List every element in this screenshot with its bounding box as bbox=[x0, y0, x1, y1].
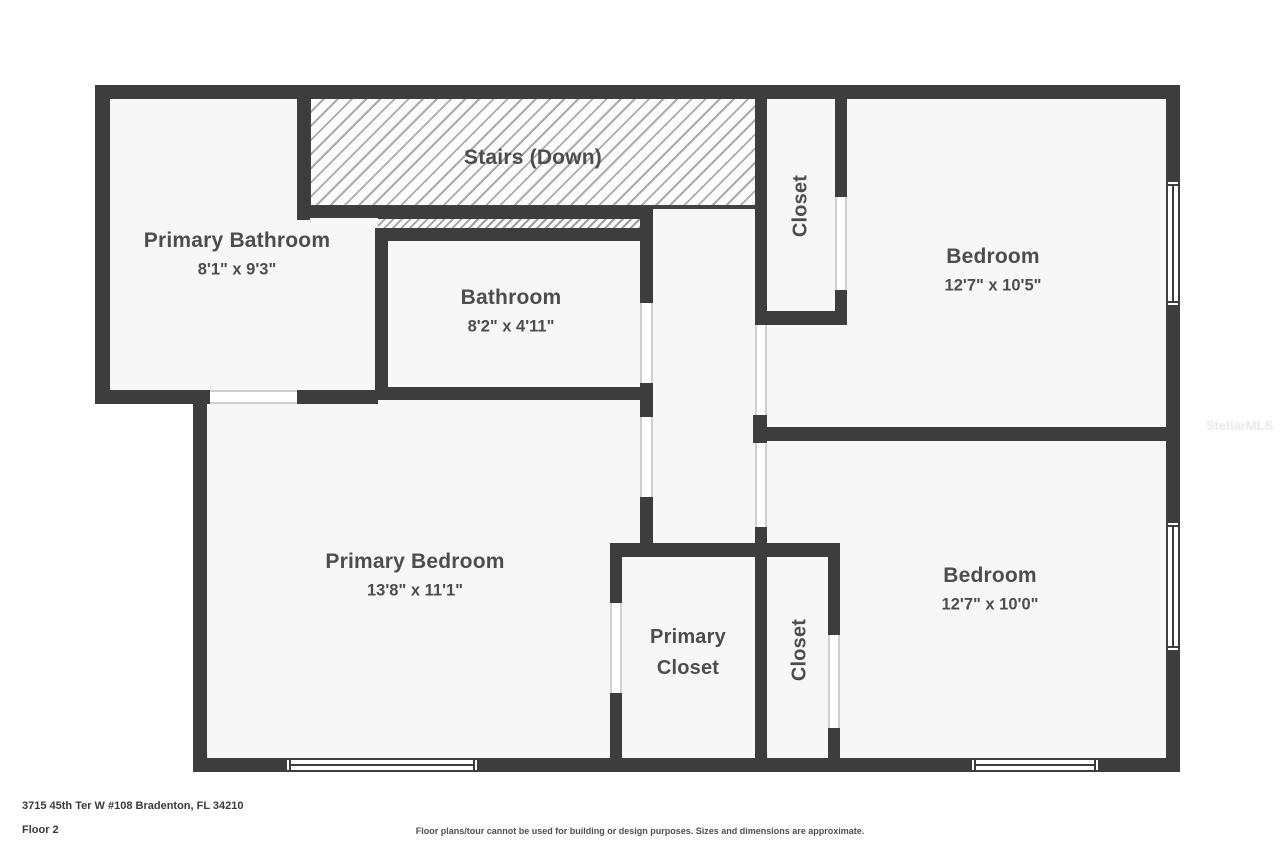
room-dims-bathroom: 8'2" x 4'11" bbox=[468, 318, 555, 337]
room-label-bedroom-bottom-right: Bedroom bbox=[943, 564, 1037, 588]
door-opening bbox=[640, 417, 653, 497]
door-opening bbox=[610, 603, 622, 693]
door-opening bbox=[835, 197, 847, 290]
room-label-stairs: Stairs (Down) bbox=[464, 146, 602, 170]
window-frame bbox=[1168, 646, 1178, 648]
window bbox=[1166, 182, 1180, 305]
door-opening bbox=[828, 635, 840, 728]
window-frame bbox=[1168, 184, 1178, 186]
floor-number-text: Floor 2 bbox=[22, 824, 59, 836]
room-dims-primary-bathroom: 8'1" x 9'3" bbox=[198, 261, 277, 280]
wall bbox=[835, 85, 847, 197]
wall bbox=[640, 206, 653, 303]
floor-plan-canvas: Stairs (Down) Primary Bathroom 8'1" x 9'… bbox=[0, 0, 1280, 852]
window-frame bbox=[1168, 525, 1178, 527]
wall bbox=[610, 693, 622, 772]
wall bbox=[755, 85, 767, 325]
door-opening bbox=[755, 325, 767, 415]
wall bbox=[375, 228, 388, 400]
room-dims-bedroom-top-right: 12'7" x 10'5" bbox=[945, 277, 1042, 296]
wall bbox=[755, 311, 847, 325]
window-frame bbox=[1094, 760, 1096, 770]
wall bbox=[640, 497, 653, 543]
window bbox=[287, 758, 477, 772]
mls-watermark: StellarMLS bbox=[1206, 418, 1273, 433]
wall bbox=[828, 728, 840, 772]
window-frame bbox=[974, 760, 976, 770]
door-opening bbox=[210, 390, 297, 404]
window-pane bbox=[1172, 527, 1174, 646]
wall bbox=[755, 527, 767, 772]
window bbox=[1166, 523, 1180, 650]
wall bbox=[95, 85, 1180, 99]
wall bbox=[760, 427, 1180, 441]
room-label-bedroom-top-right: Bedroom bbox=[946, 245, 1040, 269]
wall bbox=[375, 228, 653, 241]
room-dims-primary-bedroom: 13'8" x 11'1" bbox=[367, 582, 463, 601]
door-opening bbox=[755, 443, 767, 527]
window-frame bbox=[289, 760, 291, 770]
window-frame bbox=[473, 760, 475, 770]
door-opening bbox=[640, 303, 653, 383]
disclaimer-text: Floor plans/tour cannot be used for buil… bbox=[416, 826, 865, 836]
address-text: 3715 45th Ter W #108 Bradenton, FL 34210 bbox=[22, 800, 244, 812]
room-label-primary-bathroom: Primary Bathroom bbox=[144, 229, 330, 253]
wall bbox=[310, 206, 653, 218]
wall bbox=[828, 543, 840, 635]
window-pane bbox=[976, 764, 1094, 766]
wall bbox=[375, 387, 653, 400]
wall bbox=[193, 390, 207, 772]
room-label-primary-bedroom: Primary Bedroom bbox=[325, 550, 504, 574]
wall bbox=[610, 543, 622, 603]
outside-area bbox=[0, 404, 194, 852]
room-label-closet-bottom: Closet bbox=[789, 619, 812, 681]
room-dims-bedroom-bottom-right: 12'7" x 10'0" bbox=[942, 596, 1039, 615]
room-label-bathroom: Bathroom bbox=[461, 286, 562, 310]
window-pane bbox=[1172, 186, 1174, 301]
wall bbox=[297, 85, 310, 220]
wall bbox=[610, 543, 767, 557]
window-pane bbox=[291, 764, 473, 766]
room-label-primary-closet: Primary Closet bbox=[623, 622, 753, 684]
window-frame bbox=[1168, 301, 1178, 303]
wall bbox=[95, 85, 110, 404]
window bbox=[972, 758, 1098, 772]
room-label-closet-top: Closet bbox=[790, 175, 813, 237]
